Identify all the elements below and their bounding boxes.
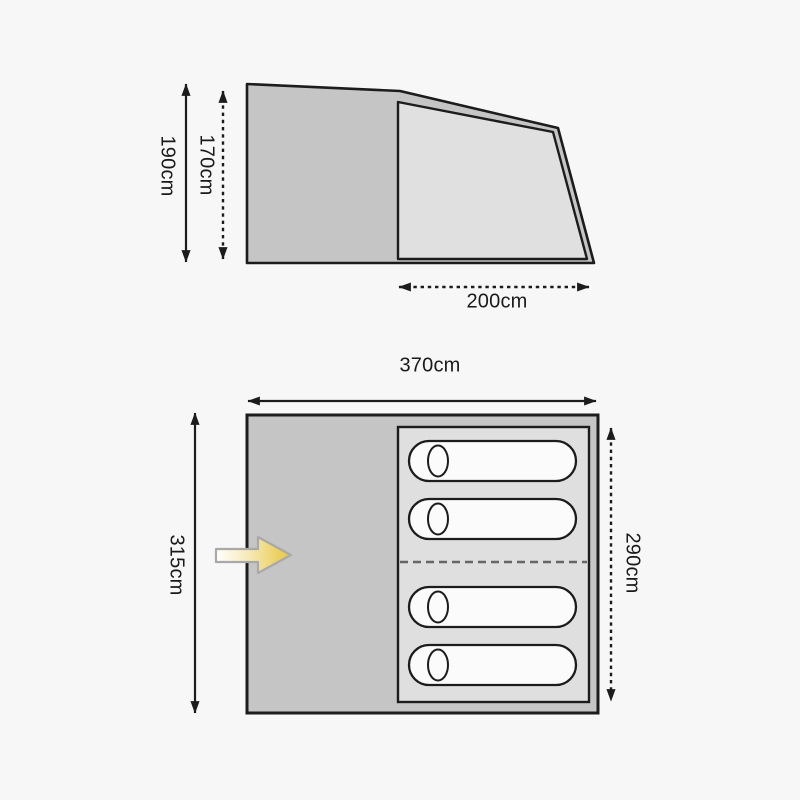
floor-plan-inner-depth-label: 290cm bbox=[621, 532, 644, 593]
tent-side-view bbox=[186, 84, 594, 287]
sleeping-bag-pillow bbox=[428, 650, 448, 681]
sleeping-bag bbox=[409, 499, 576, 539]
side-view-inner-width-label: 200cm bbox=[466, 291, 527, 314]
side-view-inner-height-label: 170cm bbox=[195, 134, 218, 195]
sleeping-bag-pillow bbox=[428, 446, 448, 477]
tent-dimensions-diagram: 190cm 170cm 200cm 370cm 315cm 290cm bbox=[0, 0, 800, 800]
floor-plan-outer-width-label: 370cm bbox=[399, 355, 460, 378]
sleeping-bag bbox=[409, 645, 576, 685]
side-view-outer-height-label: 190cm bbox=[156, 135, 179, 196]
sleeping-bag bbox=[409, 441, 576, 481]
sleeping-bag-pillow bbox=[428, 592, 448, 623]
diagram-canvas bbox=[0, 0, 800, 800]
sleeping-bag-pillow bbox=[428, 504, 448, 535]
floor-plan-outer-depth-label: 315cm bbox=[165, 534, 188, 595]
sleeping-bag bbox=[409, 587, 576, 627]
side-view-inner-tent bbox=[398, 102, 587, 259]
tent-floor-plan bbox=[195, 401, 611, 713]
